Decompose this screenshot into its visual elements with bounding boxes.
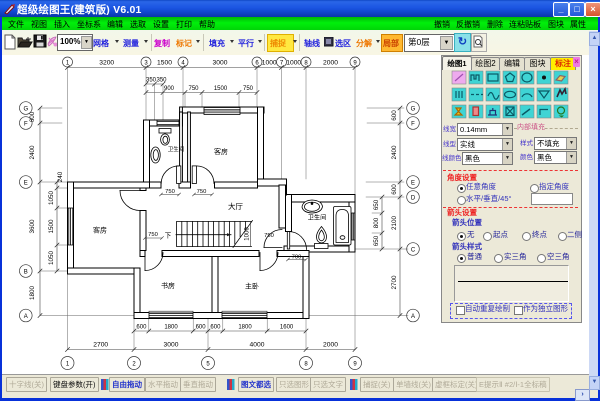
svg-text:1050: 1050 [48,191,55,206]
svg-text:600: 600 [136,325,147,331]
svg-text:750: 750 [165,189,175,195]
svg-text:下: 下 [165,232,172,240]
svg-text:600: 600 [391,110,398,121]
svg-text:2400: 2400 [391,145,398,160]
svg-text:大厅: 大厅 [228,201,243,211]
svg-text:2000: 2000 [323,60,338,67]
svg-text:A: A [24,314,28,320]
svg-text:350: 350 [146,78,157,84]
svg-text:650: 650 [373,199,380,210]
svg-text:600: 600 [196,325,207,331]
svg-text:1600: 1600 [280,325,294,331]
svg-text:750: 750 [148,232,158,238]
svg-text:3000: 3000 [164,342,179,349]
svg-text:3200: 3200 [99,60,114,67]
svg-text:600: 600 [210,325,221,331]
svg-text:客房: 客房 [214,147,228,156]
svg-text:客房: 客房 [93,226,107,235]
svg-text:2100: 2100 [391,216,398,231]
svg-text:2: 2 [132,361,136,367]
svg-text:2700: 2700 [391,275,398,290]
svg-text:2000: 2000 [323,342,338,349]
svg-text:G: G [411,106,416,112]
svg-text:1: 1 [66,361,70,367]
svg-text:D: D [411,195,416,201]
svg-text:900: 900 [164,86,175,92]
svg-text:1500: 1500 [214,86,228,92]
svg-text:E: E [24,180,28,186]
svg-text:A: A [411,314,415,320]
svg-text:G: G [23,106,28,112]
svg-text:1050: 1050 [48,251,55,266]
svg-text:书房: 书房 [161,281,175,290]
svg-text:2700: 2700 [93,342,108,349]
svg-text:800: 800 [373,217,380,228]
svg-text:750: 750 [188,86,199,92]
svg-text:5: 5 [206,361,210,367]
svg-text:2400: 2400 [29,145,36,160]
svg-text:F: F [24,121,28,127]
svg-text:C: C [411,247,416,253]
svg-text:8: 8 [304,361,308,367]
svg-text:1000: 1000 [245,227,251,241]
svg-text:600: 600 [391,184,398,195]
svg-text:卫生间: 卫生间 [168,145,185,153]
svg-text:750: 750 [197,189,207,195]
svg-text:9: 9 [353,361,357,367]
svg-text:240: 240 [57,171,64,182]
svg-text:主卧: 主卧 [245,282,259,291]
svg-text:350: 350 [156,78,167,84]
svg-text:1500: 1500 [157,60,172,67]
svg-text:3600: 3600 [29,219,36,234]
svg-text:1800: 1800 [29,286,36,301]
svg-text:1000: 1000 [262,60,277,67]
svg-text:卫生间: 卫生间 [308,214,327,222]
svg-text:E: E [411,180,415,186]
svg-text:F: F [411,121,415,127]
svg-text:750: 750 [264,233,274,239]
svg-text:1800: 1800 [164,325,178,331]
svg-text:B: B [24,269,28,275]
svg-text:4000: 4000 [250,342,265,349]
svg-text:750: 750 [243,86,254,92]
svg-text:1000: 1000 [286,60,301,67]
svg-text:3000: 3000 [213,60,228,67]
svg-text:1800: 1800 [238,325,252,331]
svg-text:650: 650 [373,235,380,246]
svg-text:1500: 1500 [48,219,55,234]
